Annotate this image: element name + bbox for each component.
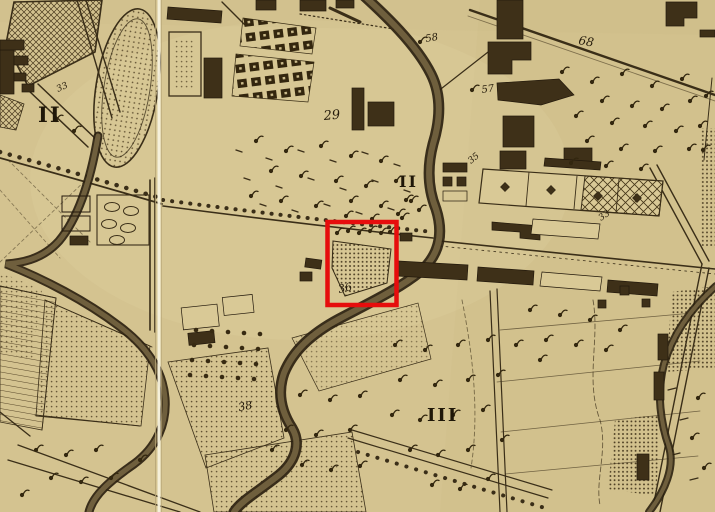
map-label: 57 <box>481 83 496 96</box>
map-viewport: IIIIIII295857683638333335 <box>0 0 715 512</box>
map-label: II <box>38 102 62 127</box>
map-label: 58 <box>425 32 439 45</box>
map-label: 38 <box>237 399 253 414</box>
map-label: 29 <box>322 108 341 124</box>
map-label: 68 <box>577 33 595 50</box>
map-label: II <box>399 172 418 191</box>
map-label: III <box>427 405 458 426</box>
map-canvas[interactable]: IIIIIII295857683638333335 <box>0 0 715 512</box>
